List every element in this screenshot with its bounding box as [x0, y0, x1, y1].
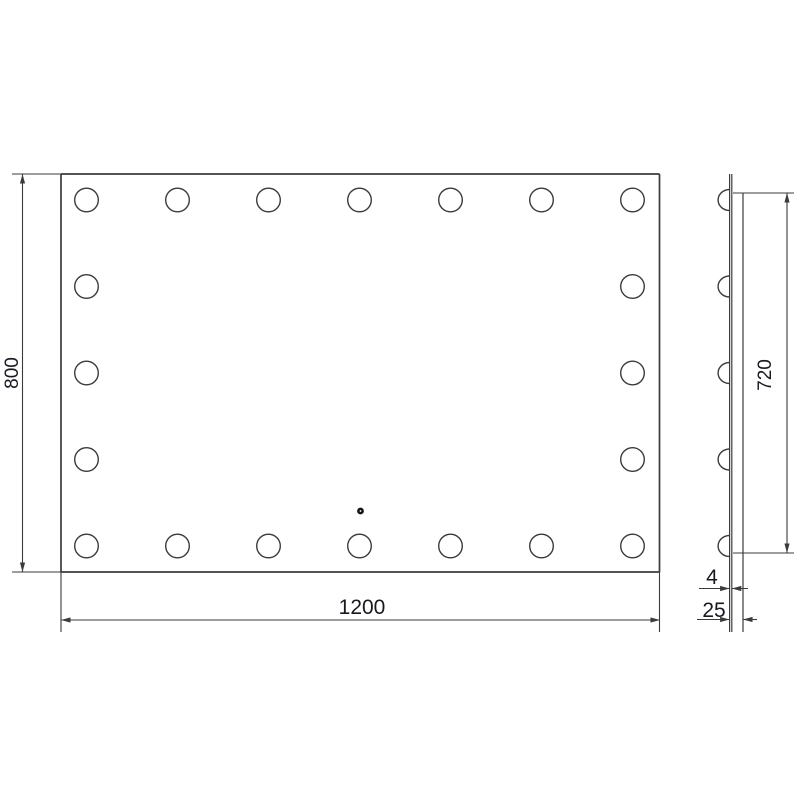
glass-dim-arrow-left	[720, 586, 730, 591]
bulb-light	[257, 534, 281, 558]
bulb-light	[439, 188, 463, 212]
height-dimension-label: 800	[2, 357, 23, 389]
height-dim-arrow-top	[20, 174, 25, 184]
width-dimension-label: 1200	[339, 596, 386, 619]
bulb-light	[166, 534, 190, 558]
width-dim-arrow-right	[651, 617, 661, 622]
bulb-light	[75, 448, 99, 472]
bulb-light	[75, 534, 99, 558]
bulb-light	[621, 534, 645, 558]
bulb-light	[75, 275, 99, 299]
bulb-light	[439, 534, 463, 558]
side-bulb-profile	[718, 190, 730, 211]
bulb-light	[75, 188, 99, 212]
lit-height-dimension-label: 720	[755, 359, 776, 391]
bulb-light	[621, 275, 645, 299]
bulb-light	[621, 361, 645, 385]
width-dim-arrow-left	[61, 617, 71, 622]
bulb-light	[621, 188, 645, 212]
side-bulb-profile	[718, 536, 730, 557]
led-mirror-technical-drawing: 8001200720425	[0, 0, 800, 800]
bulb-light	[348, 534, 372, 558]
bulb-light	[75, 361, 99, 385]
side-bulb-profile	[718, 276, 730, 297]
lit-dim-arrow-top	[784, 193, 789, 203]
bulb-light	[166, 188, 190, 212]
bulb-light	[257, 188, 281, 212]
bulb-light	[348, 188, 372, 212]
bulb-light	[530, 534, 554, 558]
bulb-light	[530, 188, 554, 212]
glass-thickness-label: 4	[706, 566, 718, 589]
bulb-light	[621, 448, 645, 472]
side-bulb-profile	[718, 449, 730, 470]
lit-dim-arrow-bottom	[784, 544, 789, 554]
height-dim-arrow-bottom	[20, 563, 25, 573]
side-bulb-profile	[718, 363, 730, 384]
drawing-canvas: 8001200720425	[0, 0, 800, 800]
touch-sensor-dot-center	[360, 510, 362, 512]
depth-label: 25	[702, 599, 725, 622]
